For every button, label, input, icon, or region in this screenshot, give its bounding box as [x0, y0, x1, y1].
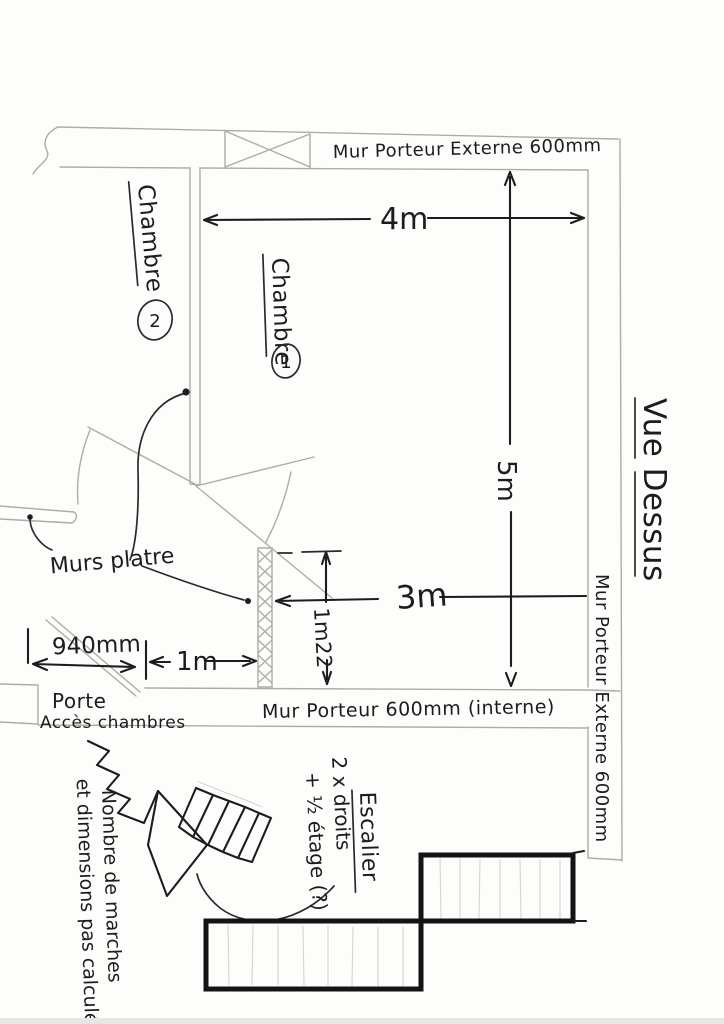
dimension-4m-label: 4m [380, 202, 428, 237]
door-leaf-diagonal [196, 486, 332, 598]
page-title: Vue Dessus [635, 398, 672, 582]
dimension-3m-label: 3m [395, 575, 449, 617]
door-label-line2: Accès chambres [40, 713, 186, 733]
stairs-title: Escalier [352, 789, 383, 892]
dimension-5m: 5m [491, 460, 521, 502]
dimension-line-5m [505, 172, 516, 686]
leader-to-column [142, 566, 244, 600]
svg-text:5m: 5m [491, 460, 521, 502]
internal-wall-left-stub [0, 684, 38, 724]
leader-dot-partition [182, 388, 189, 395]
dimension-lines [28, 172, 586, 686]
svg-text:1m22: 1m22 [309, 607, 336, 669]
partition-wall [190, 168, 200, 485]
top-wall-inner-line [60, 167, 588, 170]
leader-dot-left-wall [27, 514, 33, 520]
door-arc-right [266, 472, 291, 542]
plaster-walls-label: Murs platre [49, 544, 175, 580]
svg-text:Nombre de marches: Nombre de marches [97, 789, 126, 983]
svg-text:Vue Dessus: Vue Dessus [636, 398, 672, 582]
stairs-sketch [88, 741, 334, 921]
svg-text:2 x droits: 2 x droits [327, 756, 356, 851]
window-symbol [225, 131, 310, 168]
internal-wall-label: Mur Porteur 600mm (interne) [262, 696, 555, 723]
floor-plan-sketch-page: Mur Porteur Externe 600mm 4m Chambre 2 C… [0, 0, 724, 1024]
room-label-chambre-1: Chambre [263, 253, 296, 366]
chambre-1-number: 1 [280, 352, 291, 373]
door-leaf-right [196, 457, 314, 486]
stairs-steps [179, 788, 271, 862]
leader-to-partition [130, 393, 186, 560]
flight2-tread-lines [228, 925, 403, 986]
dimension-1m22: 1m22 [309, 607, 336, 669]
room-label-chambre-2: Chambre [129, 179, 168, 293]
chambre-1-underline [263, 254, 267, 356]
left-plaster-wall [0, 506, 76, 523]
stair-flights-plan [206, 851, 586, 989]
scan-edge [0, 1018, 724, 1024]
right-wall-bottom-cap [588, 858, 622, 860]
column-x-hatching [258, 550, 272, 683]
stairs-caption: Nombre de marches et dimensions pas calc… [72, 777, 128, 1024]
svg-text:Escalier: Escalier [354, 791, 382, 882]
leader-to-left-wall [30, 520, 52, 550]
door-leaf-left [88, 427, 195, 484]
right-wall-label: Mur Porteur Externe 600mm [591, 574, 612, 843]
internal-wall-top-line [145, 688, 588, 690]
svg-text:Mur Porteur Externe 600mm: Mur Porteur Externe 600mm [591, 574, 612, 843]
right-wall-outer-line [620, 139, 622, 861]
svg-text:Chambre: Chambre [266, 257, 296, 366]
chambre-2-number: 2 [149, 311, 160, 332]
leader-dot-column [245, 598, 251, 604]
door-label-line1: Porte [52, 689, 106, 713]
dimension-940mm-label: 940mm [52, 631, 142, 660]
door-arc-left [78, 430, 91, 504]
hidden-edge-dashes [278, 551, 341, 553]
wall-break-squiggle [33, 127, 58, 174]
pencil-walls [0, 127, 622, 861]
floor-plan-drawing: Mur Porteur Externe 600mm 4m Chambre 2 C… [0, 0, 724, 1024]
dimension-1m-label: 1m [176, 647, 218, 677]
svg-text:+ ½ étage (?): + ½ étage (?) [301, 771, 332, 911]
stairs-note: 2 x droits + ½ étage (?) [300, 756, 359, 911]
flight1-rectangle [421, 855, 573, 921]
flight2-rectangle [206, 921, 421, 989]
flight1-tread-lines [440, 858, 560, 918]
top-wall-label: Mur Porteur Externe 600mm [333, 135, 602, 163]
